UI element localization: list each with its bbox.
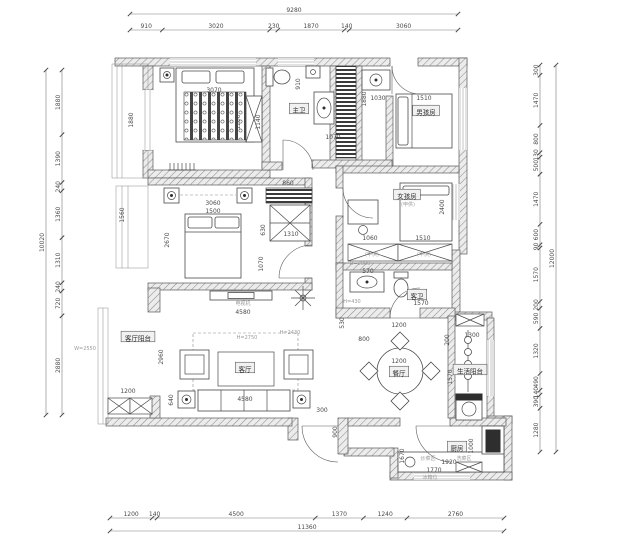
dim-text: 1470: [533, 93, 540, 108]
dim-text: 1880: [361, 91, 368, 106]
dim-text: 1390: [55, 151, 62, 166]
dim-text: 4580: [237, 396, 252, 403]
dim-chain-right: 3001470800130500147060090157020059013204…: [533, 63, 558, 454]
svg-text:厨房: 厨房: [451, 444, 464, 453]
dim-text: 1240: [378, 511, 393, 518]
dim-text: 1560: [119, 207, 126, 222]
dim-text: 1030: [370, 95, 385, 102]
bedroom2-furniture: [160, 68, 262, 170]
dim-text: 530: [339, 317, 346, 329]
dim-text: 910: [295, 78, 302, 90]
dim-text: 630: [260, 224, 267, 236]
dim-text: 1870: [303, 23, 318, 30]
dim-text: 720: [55, 298, 62, 310]
dim-text: 1510: [416, 95, 431, 102]
room-label-kitchen: 厨房: [447, 441, 466, 452]
dim-text: 1360: [55, 206, 62, 221]
dim-text: 230: [268, 23, 280, 30]
guest-bath-fixtures: [350, 272, 408, 297]
dim-text: 390: [533, 396, 540, 408]
radiator: [168, 163, 196, 170]
dim-text: 800: [533, 133, 540, 145]
dim-text: 900: [332, 426, 339, 438]
floor-plan-canvas: 9103020230187014030609280120014045001370…: [0, 0, 640, 542]
room-label-living-balcony: 客厅阳台: [121, 331, 155, 342]
svg-text:主卫: 主卫: [293, 106, 307, 115]
svg-text:生活阳台: 生活阳台: [457, 367, 483, 376]
dim-text: 490: [533, 376, 540, 388]
dim-text: 1060: [362, 235, 377, 242]
dim-chain-bottom: 1200140450013701240276011360: [108, 511, 506, 533]
dim-text: 600: [533, 229, 540, 241]
dim-text: 570: [362, 268, 374, 275]
room-label-boys-room: 男孩房: [413, 105, 440, 116]
dim-text: 2400: [439, 199, 446, 214]
dim-text: 1880: [128, 112, 135, 127]
dim-text: 1500: [205, 208, 220, 215]
dim-total: 10020: [39, 233, 46, 252]
dim-text: 1200: [235, 114, 242, 129]
dim-text: 1280: [533, 422, 540, 437]
room-label-master-bath: 主卫: [289, 103, 308, 114]
dim-text: 1200: [391, 358, 406, 365]
annotation-text: W=2550: [74, 346, 96, 352]
dim-text: 3060: [205, 200, 220, 207]
dim-text: 3020: [208, 23, 223, 30]
dim-text: 200: [444, 334, 451, 346]
dim-text: 1370: [332, 511, 347, 518]
dim-total: 9280: [286, 7, 301, 14]
dim-text: 500: [533, 160, 540, 172]
dim-text: 1310: [283, 231, 298, 238]
dim-text: 860: [282, 180, 294, 187]
dim-text: 90: [533, 242, 540, 250]
svg-text:餐厅: 餐厅: [393, 369, 407, 378]
dim-text: 1510: [415, 235, 430, 242]
dim-text: 300: [316, 407, 328, 414]
dim-text: 2880: [55, 358, 62, 373]
hall-closet: [336, 66, 390, 158]
dim-text: 1570: [413, 300, 428, 307]
room-label-girls-room: 女孩房: [394, 189, 421, 200]
svg-text:男孩房: 男孩房: [416, 108, 436, 117]
dim-text: 640: [168, 394, 175, 406]
dim-text: 1570: [447, 369, 454, 384]
svg-text:客厅阳台: 客厅阳台: [125, 334, 151, 343]
room-label-dining-room: 餐厅: [389, 366, 408, 377]
dim-text: 1200: [391, 322, 406, 329]
dim-chain-left: 1880139024013601310240720288010020: [39, 68, 64, 417]
dim-text: 4500: [229, 511, 244, 518]
annotation-text: 炒菜区: [420, 455, 435, 462]
annotation-text: H=2430: [280, 330, 301, 336]
dim-text: 2960: [158, 349, 165, 364]
dim-text: 1300: [464, 332, 479, 339]
dim-text: 200: [533, 299, 540, 311]
annotation-text: (甲供): [401, 201, 415, 208]
dim-total: 11360: [297, 524, 316, 531]
dim-text: 1140: [255, 114, 262, 129]
room-label-service-balcony: 生活阳台: [453, 364, 487, 375]
dim-text: 1920: [441, 459, 456, 466]
annotation-text: H=2080: [350, 261, 371, 267]
dim-text: 1200: [120, 388, 135, 395]
dim-text: 1000: [468, 438, 475, 453]
dim-text: 1200: [123, 511, 138, 518]
dim-text: 2670: [164, 232, 171, 247]
annotation-text: (甲供): [365, 251, 379, 258]
dim-text: 2760: [448, 511, 463, 518]
dim-text: 1320: [533, 343, 540, 358]
dim-chain-top: 9103020230187014030609280: [128, 7, 460, 32]
dim-text: 140: [341, 23, 353, 30]
svg-text:客厅: 客厅: [239, 365, 253, 374]
dim-text: 130: [533, 149, 540, 161]
dim-text: 1570: [533, 267, 540, 282]
dim-text: 800: [358, 336, 370, 343]
dim-total: 12000: [549, 249, 556, 268]
dim-text: 1310: [55, 252, 62, 267]
dim-text: 1880: [55, 95, 62, 110]
dim-text: 1770: [426, 467, 441, 474]
annotation-text: H=430: [343, 299, 361, 305]
dim-text: 910: [140, 23, 152, 30]
dim-text: 590: [533, 312, 540, 324]
annotation-text: 洗菜区: [456, 455, 471, 462]
dim-text: 240: [55, 181, 62, 193]
dim-text: 240: [55, 281, 62, 293]
floor-plan-svg: 9103020230187014030609280120014045001370…: [0, 0, 640, 542]
annotation-text: 电视机: [235, 300, 250, 307]
dim-text: 3060: [396, 23, 411, 30]
annotation-text: (甲供): [417, 251, 431, 258]
dim-text: 1470: [533, 191, 540, 206]
dim-text: 3070: [206, 87, 221, 94]
annotation-text: H=2750: [237, 335, 258, 341]
master-bath-fixtures: [266, 66, 334, 124]
dim-text: 1070: [325, 134, 340, 141]
annotation-text: 冰箱位: [422, 474, 437, 481]
svg-text:女孩房: 女孩房: [397, 192, 417, 201]
room-label-guest-bath: 客卫: [407, 289, 426, 300]
dim-text: 1070: [258, 256, 265, 271]
dim-text: 1670: [399, 448, 406, 463]
room-label-living-room: 客厅: [235, 362, 254, 373]
dim-text: 140: [149, 511, 161, 518]
dim-text: 300: [533, 64, 540, 76]
dim-text: 4580: [235, 309, 250, 316]
boys-room-furniture: [396, 94, 452, 148]
